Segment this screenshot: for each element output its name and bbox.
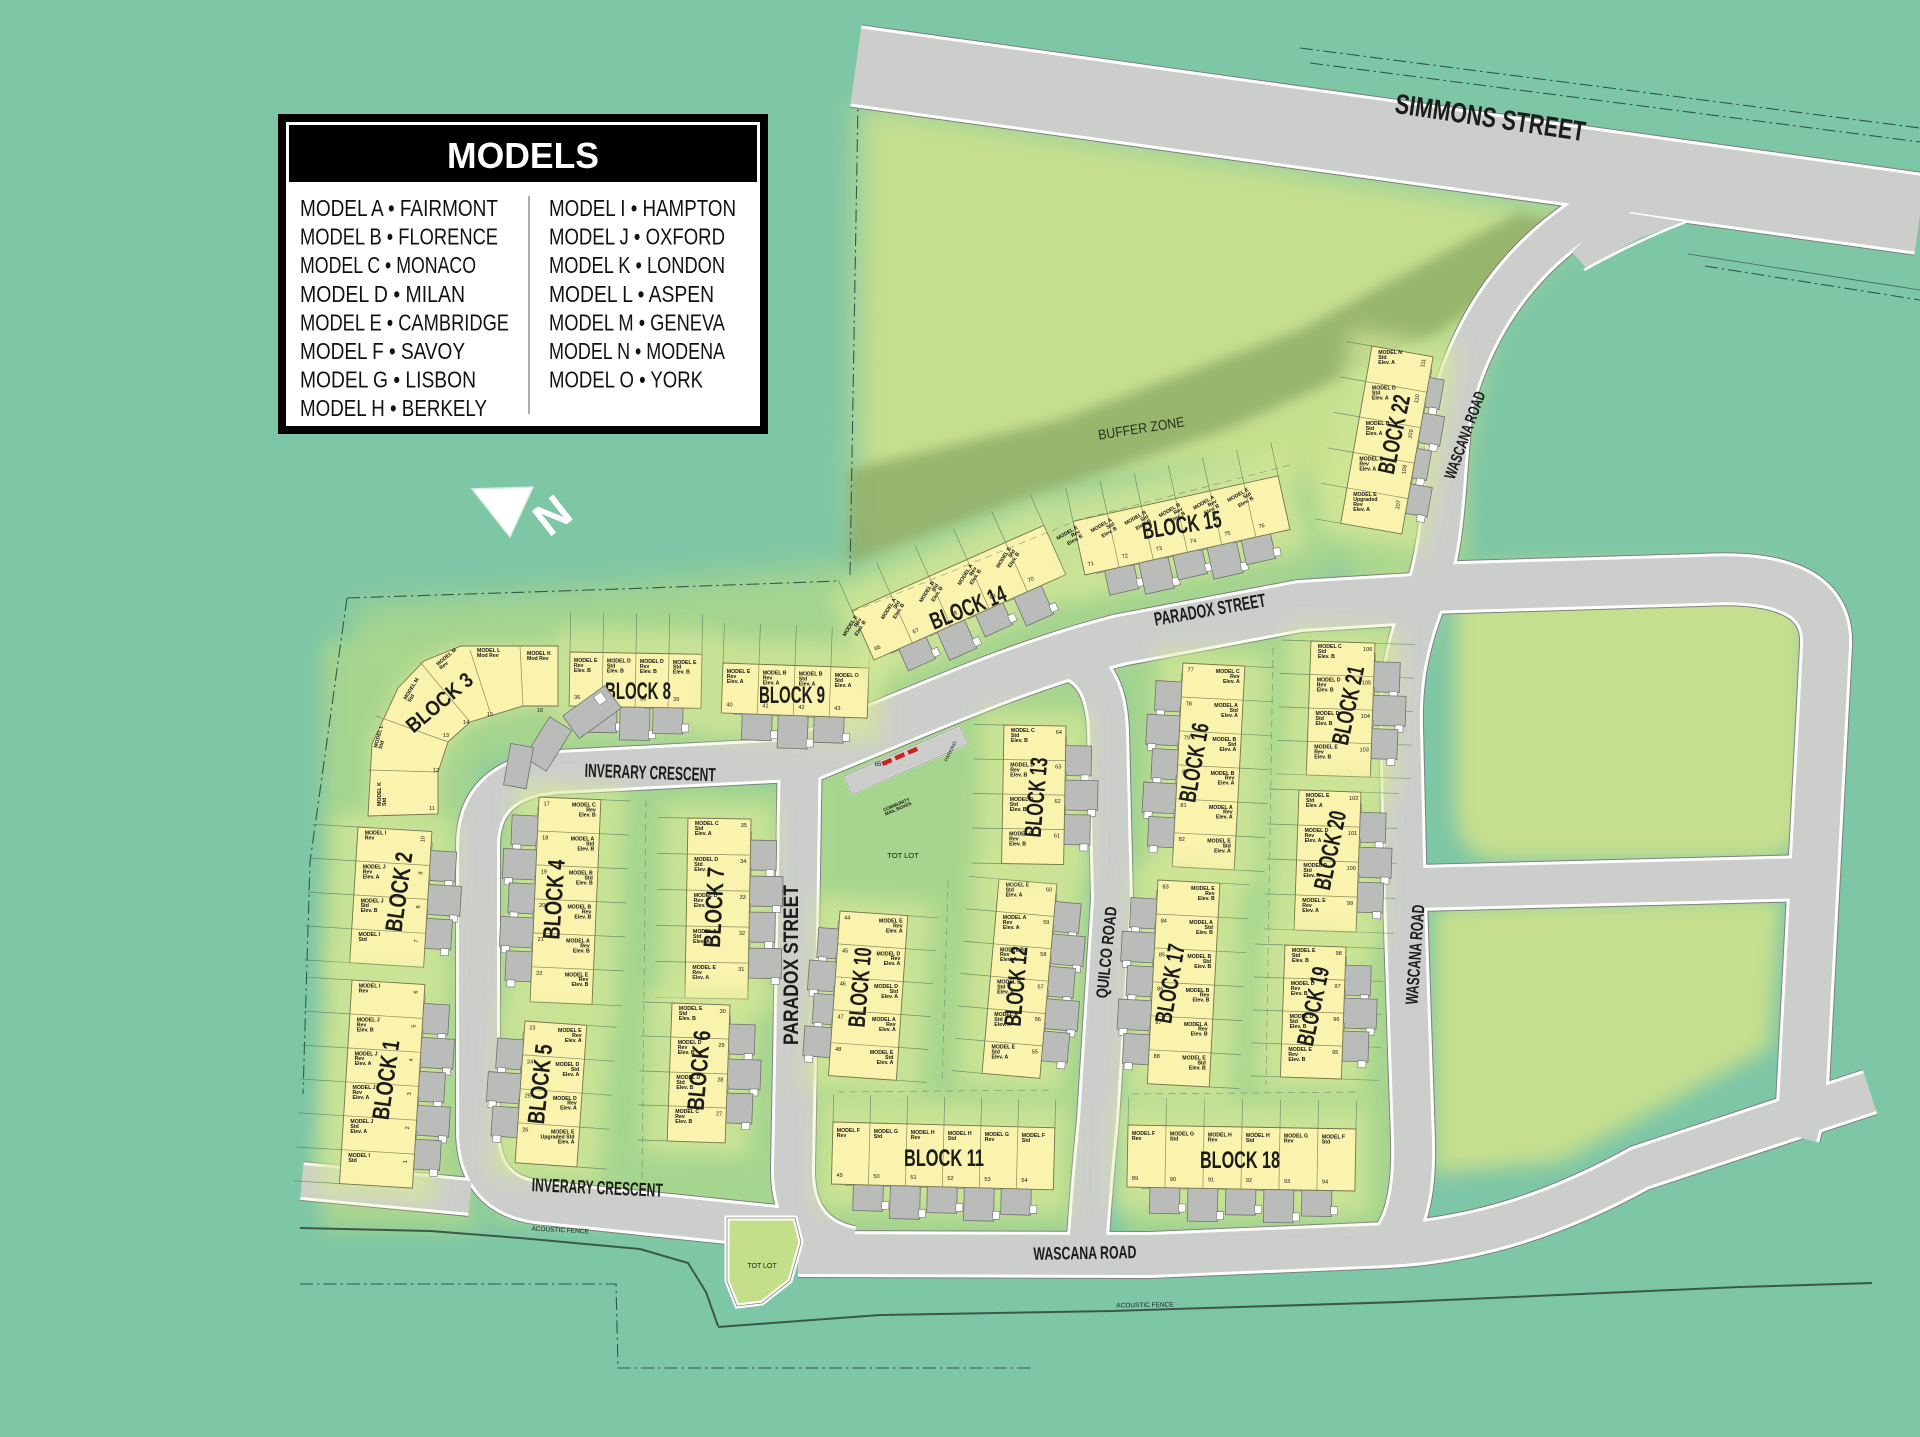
svg-text:MODEL F • SAVOY: MODEL F • SAVOY — [300, 338, 465, 364]
svg-text:94: 94 — [1322, 1179, 1328, 1185]
svg-text:88: 88 — [1154, 1054, 1160, 1060]
svg-text:93: 93 — [1284, 1179, 1290, 1185]
svg-text:39: 39 — [673, 697, 679, 703]
svg-text:33: 33 — [739, 895, 745, 901]
svg-text:52: 52 — [947, 1176, 953, 1182]
svg-text:3: 3 — [407, 1092, 413, 1095]
svg-text:106: 106 — [1363, 647, 1372, 653]
svg-text:76: 76 — [1258, 523, 1265, 530]
svg-text:91: 91 — [1208, 1178, 1214, 1184]
svg-text:45: 45 — [842, 949, 848, 955]
svg-text:83: 83 — [1162, 884, 1168, 890]
svg-text:75: 75 — [1224, 531, 1231, 538]
svg-text:56: 56 — [1035, 1017, 1041, 1023]
svg-text:4: 4 — [409, 1058, 415, 1061]
svg-text:32: 32 — [739, 931, 745, 937]
svg-text:92: 92 — [1246, 1178, 1252, 1184]
svg-text:18: 18 — [542, 835, 548, 841]
svg-text:61: 61 — [1054, 833, 1060, 839]
svg-text:WASCANA ROAD: WASCANA ROAD — [1033, 1242, 1136, 1264]
svg-text:99: 99 — [1347, 901, 1353, 907]
svg-text:31: 31 — [738, 967, 744, 973]
svg-text:MODEL O • YORK: MODEL O • YORK — [549, 367, 704, 393]
svg-text:BLOCK 18: BLOCK 18 — [1200, 1147, 1280, 1174]
svg-text:MODEL E • CAMBRIDGE: MODEL E • CAMBRIDGE — [300, 309, 509, 335]
svg-text:36: 36 — [574, 695, 580, 701]
svg-text:98: 98 — [1336, 951, 1342, 957]
svg-text:29: 29 — [718, 1043, 724, 1049]
svg-text:84: 84 — [1161, 918, 1167, 924]
svg-text:MODEL K • LONDON: MODEL K • LONDON — [549, 252, 725, 278]
svg-text:46: 46 — [840, 981, 846, 987]
svg-text:49: 49 — [836, 1173, 842, 1179]
svg-text:30: 30 — [720, 1009, 726, 1015]
svg-text:PARADOX STREET: PARADOX STREET — [780, 885, 803, 1045]
svg-text:102: 102 — [1349, 796, 1358, 802]
svg-text:MODEL N • MODENA: MODEL N • MODENA — [549, 338, 726, 364]
svg-text:77: 77 — [1187, 667, 1193, 673]
svg-text:100: 100 — [1347, 866, 1356, 872]
svg-text:8: 8 — [416, 905, 422, 908]
svg-text:16: 16 — [537, 708, 543, 714]
svg-text:62: 62 — [1054, 799, 1060, 805]
svg-text:64: 64 — [1056, 730, 1062, 736]
svg-text:7: 7 — [414, 939, 420, 942]
svg-text:BLOCK 7: BLOCK 7 — [699, 867, 730, 948]
svg-text:103: 103 — [1360, 747, 1369, 753]
svg-text:BLOCK 9: BLOCK 9 — [759, 682, 825, 709]
svg-text:MODEL M • GENEVA: MODEL M • GENEVA — [549, 309, 726, 335]
svg-text:BLOCK 11: BLOCK 11 — [904, 1145, 984, 1172]
svg-text:89: 89 — [1132, 1176, 1138, 1182]
svg-text:MODELS: MODELS — [447, 135, 599, 176]
svg-text:48: 48 — [835, 1047, 841, 1053]
svg-text:MODEL C • MONACO: MODEL C • MONACO — [300, 252, 476, 278]
svg-text:23: 23 — [529, 1026, 535, 1032]
svg-text:51: 51 — [910, 1175, 916, 1181]
svg-text:74: 74 — [1190, 538, 1197, 545]
svg-text:MODEL D • MILAN: MODEL D • MILAN — [300, 281, 465, 307]
svg-text:28: 28 — [717, 1078, 723, 1084]
svg-text:TOT LOT: TOT LOT — [887, 851, 919, 860]
svg-text:13: 13 — [443, 733, 449, 739]
svg-text:40: 40 — [726, 702, 732, 708]
svg-text:73: 73 — [1156, 546, 1163, 553]
svg-text:95: 95 — [1332, 1050, 1338, 1056]
svg-text:9: 9 — [418, 871, 424, 874]
svg-text:59: 59 — [1043, 920, 1049, 926]
svg-text:MODEL L • ASPEN: MODEL L • ASPEN — [549, 281, 714, 307]
svg-text:65: 65 — [875, 762, 882, 768]
svg-text:78: 78 — [1186, 701, 1192, 707]
svg-text:34: 34 — [740, 859, 746, 865]
svg-text:27: 27 — [716, 1112, 722, 1118]
svg-text:71: 71 — [1087, 561, 1094, 568]
svg-text:82: 82 — [1179, 837, 1185, 843]
svg-text:ACOUSTIC FENCE: ACOUSTIC FENCE — [1116, 1301, 1174, 1309]
svg-text:60: 60 — [1046, 887, 1052, 893]
svg-text:81: 81 — [1180, 803, 1186, 809]
svg-text:2: 2 — [405, 1126, 411, 1129]
svg-text:96: 96 — [1333, 1017, 1339, 1023]
svg-text:63: 63 — [1055, 765, 1061, 771]
svg-text:MODEL G • LISBON: MODEL G • LISBON — [300, 367, 476, 393]
svg-text:17: 17 — [543, 801, 549, 807]
svg-text:104: 104 — [1361, 714, 1370, 720]
svg-text:1: 1 — [403, 1160, 409, 1163]
svg-text:11: 11 — [429, 806, 435, 812]
svg-text:90: 90 — [1170, 1177, 1176, 1183]
svg-text:15: 15 — [487, 712, 493, 718]
svg-text:35: 35 — [741, 823, 747, 829]
svg-text:55: 55 — [1032, 1049, 1038, 1055]
svg-text:22: 22 — [536, 971, 542, 977]
svg-text:97: 97 — [1334, 984, 1340, 990]
svg-text:MODEL J • OXFORD: MODEL J • OXFORD — [549, 224, 725, 250]
svg-text:6: 6 — [413, 990, 419, 993]
svg-text:72: 72 — [1121, 553, 1128, 560]
svg-text:47: 47 — [837, 1014, 843, 1020]
svg-text:MODEL I • HAMPTON: MODEL I • HAMPTON — [549, 195, 736, 221]
svg-text:MODEL B • FLORENCE: MODEL B • FLORENCE — [300, 224, 498, 250]
svg-text:53: 53 — [984, 1177, 990, 1183]
svg-text:MODEL A • FAIRMONT: MODEL A • FAIRMONT — [300, 195, 498, 221]
svg-text:43: 43 — [834, 706, 840, 712]
svg-text:57: 57 — [1037, 985, 1043, 991]
svg-text:5: 5 — [411, 1024, 417, 1027]
svg-text:101: 101 — [1348, 831, 1357, 837]
svg-text:12: 12 — [433, 768, 439, 774]
svg-text:44: 44 — [844, 916, 850, 922]
svg-text:TOT LOT: TOT LOT — [747, 1263, 777, 1270]
svg-text:MODEL H • BERKELY: MODEL H • BERKELY — [300, 395, 487, 421]
svg-text:54: 54 — [1021, 1178, 1027, 1184]
svg-text:26: 26 — [522, 1127, 528, 1133]
svg-text:10: 10 — [420, 836, 426, 842]
svg-text:50: 50 — [873, 1174, 879, 1180]
svg-text:BLOCK 4: BLOCK 4 — [538, 858, 571, 940]
svg-text:58: 58 — [1040, 952, 1046, 958]
svg-text:14: 14 — [463, 720, 469, 726]
svg-text:MODEL LMod Rev: MODEL LMod Rev — [477, 648, 501, 659]
svg-text:MODEL KMod Rev: MODEL KMod Rev — [527, 651, 551, 662]
